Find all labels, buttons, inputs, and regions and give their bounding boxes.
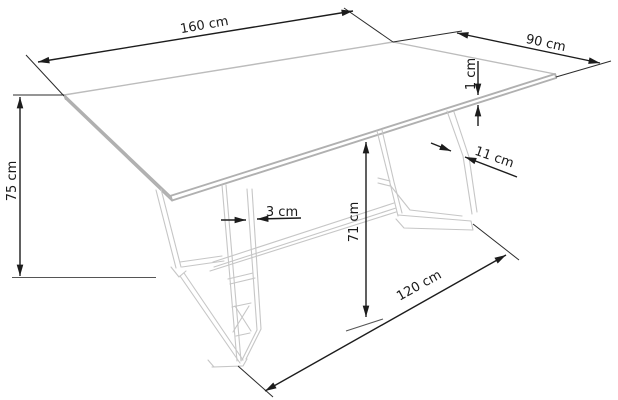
- left-leg-cross-braces: [233, 306, 251, 332]
- dimension-leg-width: 11 cm: [431, 143, 517, 177]
- left-leg-back-foot: [171, 267, 186, 277]
- stretcher-lines: [210, 203, 396, 271]
- dimension-base-span: 120 cm: [238, 224, 519, 397]
- dimension-line: [265, 255, 506, 391]
- floor-reference-71: [346, 319, 383, 331]
- dimension-label-leg-width: 11 cm: [473, 144, 516, 171]
- right-leg-rung: [378, 178, 390, 186]
- extension-line: [238, 224, 519, 397]
- right-leg-inner-frame: [390, 185, 462, 216]
- right-leg-far-strut: [377, 130, 402, 216]
- dimension-label-length: 160 cm: [179, 14, 230, 37]
- table-dimension-drawing: 160 cm 90 cm 1 cm 75 cm 11 cm 3 cm 71 cm: [0, 0, 618, 400]
- dimension-label-base-span: 120 cm: [394, 268, 444, 305]
- tabletop-surface: [64, 42, 555, 196]
- right-leg: [377, 111, 477, 230]
- dimension-height: 75 cm: [5, 95, 64, 276]
- tabletop: [64, 42, 556, 201]
- diagram-canvas: 160 cm 90 cm 1 cm 75 cm 11 cm 3 cm 71 cm: [0, 0, 618, 400]
- stretcher-rail: [210, 203, 396, 271]
- dimension-label-clearance: 71 cm: [347, 202, 362, 243]
- dimension-label-height: 75 cm: [5, 161, 20, 202]
- dimension-arrow-left: [431, 143, 451, 151]
- dimension-label-frame-width: 3 cm: [266, 205, 298, 220]
- left-leg-back-strut: [156, 189, 181, 268]
- dimension-label-top-thickness: 1 cm: [464, 58, 479, 90]
- right-leg-bottom-rail: [396, 215, 473, 230]
- dimension-frame-width: 3 cm: [221, 205, 301, 220]
- left-leg-front-strut-b: [247, 189, 261, 330]
- left-leg: [156, 185, 261, 367]
- right-leg-near-strut: [447, 111, 477, 214]
- left-leg-front-strut-a: [222, 185, 241, 361]
- dimension-clearance: 71 cm: [347, 142, 366, 317]
